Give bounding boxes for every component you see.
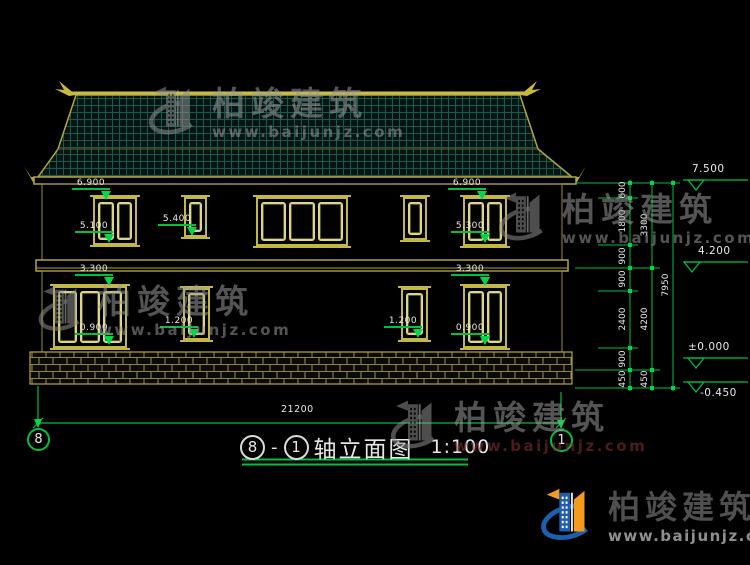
- chain-dim: 7950: [661, 274, 671, 297]
- overall-width-dim: 21200: [281, 404, 314, 415]
- baijun-logo-icon: [36, 284, 90, 340]
- elevation-label: 1.200: [384, 316, 422, 328]
- title-dash: -: [271, 437, 278, 458]
- window-pane: [261, 202, 286, 241]
- level-text: -0.450: [700, 387, 737, 399]
- watermark-brand: 柏竣建筑: [212, 87, 405, 122]
- elevation-arrow-icon: [104, 234, 114, 243]
- elevation-drawing-sheet: 6.900 5.100 5.400 3.300 0.900 1.200 1.20…: [0, 0, 750, 565]
- company-logo-brand: 柏竣建筑: [608, 491, 750, 525]
- window-pane: [117, 202, 133, 240]
- roof-finial-right: [520, 81, 541, 96]
- axis-bubble-left: 8: [27, 428, 50, 451]
- company-logo: 柏竣建筑www.baijunjz.com: [538, 486, 750, 550]
- elevation-arrow-icon: [477, 191, 487, 200]
- window-pane: [318, 202, 343, 241]
- chain-dim: 2400: [618, 308, 628, 331]
- watermark-brand: 柏竣建筑: [98, 285, 291, 320]
- watermark-url: www.baijunjz.com: [98, 321, 291, 339]
- watermark-url: www.baijunjz.com: [212, 123, 405, 141]
- baijun-logo-icon: [496, 190, 554, 250]
- plinth-brick-band: [30, 352, 572, 384]
- window: [403, 197, 427, 240]
- watermark: 柏竣建筑www.baijunjz.com: [496, 190, 750, 250]
- chain-dim: 900: [618, 350, 628, 367]
- chain-dim: 450: [640, 370, 650, 387]
- elevation-arrow-icon: [480, 234, 490, 243]
- elevation-arrow-icon: [480, 336, 490, 345]
- level-text: 7.500: [692, 163, 725, 175]
- chain-dim: 4200: [640, 308, 650, 331]
- baijun-logo-icon: [388, 398, 446, 458]
- chain-dim: 900: [618, 270, 628, 287]
- watermark-url: www.baijunjz.com: [562, 229, 750, 247]
- watermark: 柏竣建筑www.baijunjz.com: [388, 398, 647, 458]
- elevation-label: 5.400: [158, 214, 196, 226]
- elevation-arrow-icon: [101, 191, 111, 200]
- title-axis-end: 1: [284, 435, 309, 460]
- elevation-label: 6.900: [72, 178, 110, 190]
- title-axis-start: 8: [240, 435, 265, 460]
- level-text: ±0.000: [688, 341, 730, 353]
- elevation-label: 5.100: [75, 221, 113, 233]
- watermark-brand: 柏竣建筑: [454, 401, 647, 436]
- window: [256, 197, 348, 246]
- elevation-label: 3.300: [75, 264, 113, 276]
- elevation-label: 0.900: [451, 323, 489, 335]
- window-pane: [289, 202, 314, 241]
- elevation-arrow-icon: [187, 227, 197, 236]
- chain-dim: 450: [618, 370, 628, 387]
- watermark: 柏竣建筑www.baijunjz.com: [36, 284, 291, 340]
- baijun-logo-icon: [538, 486, 600, 550]
- elevation-label: 5.300: [451, 221, 489, 233]
- baijun-logo-icon: [146, 84, 204, 144]
- elevation-label: 3.300: [451, 264, 489, 276]
- roof-finial-left: [55, 81, 76, 96]
- elevation-label: 6.900: [448, 178, 486, 190]
- elevation-arrow-icon: [480, 277, 490, 286]
- watermark: 柏竣建筑www.baijunjz.com: [146, 84, 405, 144]
- window-pane: [408, 202, 422, 235]
- company-logo-url: www.baijunjz.com: [608, 527, 750, 545]
- watermark-url: www.baijunjz.com: [454, 437, 647, 455]
- watermark-brand: 柏竣建筑: [562, 193, 750, 228]
- elevation-arrow-icon: [413, 329, 423, 338]
